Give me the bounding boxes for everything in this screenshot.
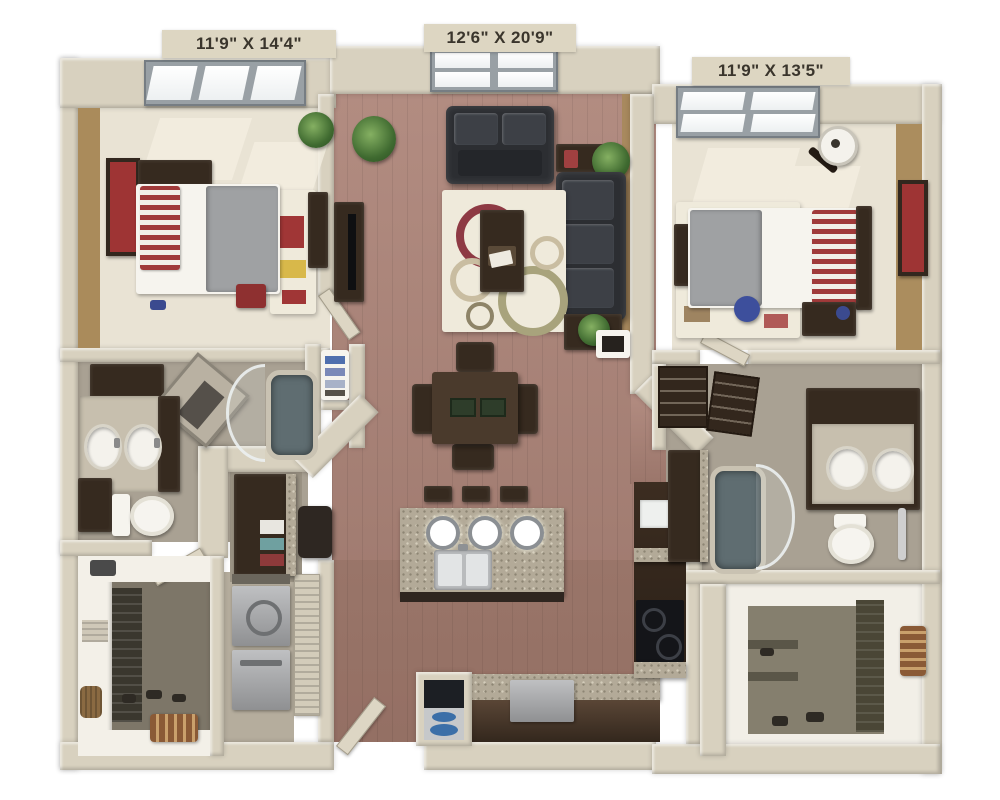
dining-chair-bottom bbox=[452, 444, 494, 470]
kitchen-counter-corner bbox=[634, 662, 686, 678]
nook-towel bbox=[260, 538, 284, 550]
wall-bedroom-right-bottom-a bbox=[652, 350, 700, 364]
desk-nook-counter bbox=[286, 474, 296, 576]
cooktop bbox=[636, 600, 684, 662]
cooktop-burner bbox=[656, 634, 682, 660]
loveseat-cushion bbox=[454, 113, 498, 145]
wall-closet-laundry-divider bbox=[210, 556, 224, 756]
linen-shelf-right-a bbox=[658, 366, 708, 428]
linen-item bbox=[325, 390, 345, 396]
loveseat bbox=[446, 106, 554, 184]
window-pane bbox=[750, 114, 815, 132]
wall-closet-right-left bbox=[700, 584, 726, 756]
bath-right-side-counter bbox=[700, 450, 708, 562]
window-bedroom-right bbox=[676, 86, 820, 138]
window-pane bbox=[198, 66, 249, 100]
wall-bath-left-lband-vertical bbox=[198, 446, 228, 558]
headboard-bedroom-left bbox=[138, 160, 212, 186]
folded-sweaters bbox=[82, 620, 108, 642]
shoe bbox=[772, 716, 788, 726]
sofa-cushion bbox=[562, 268, 614, 308]
shoe bbox=[172, 694, 186, 702]
rug-accent bbox=[276, 216, 304, 248]
bath-left-cabinet-top bbox=[90, 364, 164, 398]
island-faucet bbox=[458, 544, 468, 551]
window-pane bbox=[146, 66, 197, 100]
toilet-left-tank bbox=[112, 494, 130, 536]
round-pillow bbox=[734, 296, 760, 322]
vanity-right-sink bbox=[872, 448, 914, 492]
sink-basin bbox=[438, 554, 462, 586]
nightstand-globe bbox=[836, 306, 850, 320]
closet-right-hanging-clothes bbox=[856, 600, 884, 732]
wall-bath-left-bottom bbox=[60, 540, 152, 556]
picture-frame-inner bbox=[602, 336, 624, 352]
wall-art-bedroom-left bbox=[106, 158, 140, 256]
placemat bbox=[480, 398, 506, 417]
rug-accent bbox=[280, 260, 306, 278]
window-light-patch bbox=[692, 148, 800, 204]
floor-plan: 11'9" X 14'4" 12'6" X 20'9" 11'9" X 13'5… bbox=[0, 0, 1000, 800]
bedroom-left-floor-item bbox=[150, 300, 166, 310]
bar-stool bbox=[500, 486, 528, 502]
dimension-label-living-room: 12'6" X 20'9" bbox=[424, 24, 576, 52]
rug-accent bbox=[282, 290, 306, 304]
dishwasher bbox=[510, 680, 574, 722]
wall-art-bedroom-right bbox=[898, 180, 928, 276]
window-pane bbox=[498, 53, 553, 68]
pendant-light bbox=[510, 516, 544, 550]
dimension-label-bedroom-right: 11'9" X 13'5" bbox=[692, 57, 850, 85]
wall-bedroom-right-bottom-b bbox=[748, 350, 940, 364]
pantry-upper-shelf bbox=[424, 680, 464, 708]
shoe bbox=[760, 648, 774, 656]
linen-towel bbox=[325, 380, 345, 388]
bed-right-blanket bbox=[690, 210, 762, 306]
tv-screen bbox=[348, 214, 356, 290]
wall-bath-right-bottom bbox=[652, 570, 940, 584]
toilet-left-bowl bbox=[130, 496, 174, 536]
vanity-right-sink bbox=[826, 446, 868, 490]
plant-living-left bbox=[352, 116, 396, 162]
plant-bedroom-left bbox=[298, 112, 334, 148]
window-living-room bbox=[430, 48, 558, 92]
accent-wall-bedroom-left bbox=[78, 108, 100, 348]
bar-stool bbox=[462, 486, 490, 502]
window-pane bbox=[750, 92, 815, 110]
bar-stool bbox=[424, 486, 452, 502]
rug-accent bbox=[764, 314, 788, 328]
linen-towel bbox=[325, 356, 345, 364]
closet-right-shelf-bar bbox=[748, 640, 798, 649]
outer-wall-left bbox=[60, 58, 78, 770]
rug-circle bbox=[530, 236, 564, 270]
laundry-shelf bbox=[232, 574, 290, 584]
bed-right-pillows bbox=[812, 210, 858, 304]
washer-door bbox=[246, 600, 282, 636]
closet-right-bench bbox=[900, 626, 926, 676]
kitchen-island-base bbox=[400, 592, 564, 602]
closet-left-shelf-item bbox=[90, 560, 116, 576]
desk-chair bbox=[298, 506, 332, 558]
faucet bbox=[154, 438, 160, 448]
wall-living-right bbox=[630, 94, 654, 394]
sofa-cushion bbox=[562, 180, 614, 220]
window-pane bbox=[680, 114, 745, 132]
dimension-label-bedroom-left: 11'9" X 14'4" bbox=[162, 30, 336, 58]
shoe bbox=[146, 690, 162, 699]
blue-dishes bbox=[432, 712, 456, 722]
bed-left-pillows bbox=[140, 186, 180, 270]
bed-left-blanket bbox=[206, 186, 278, 292]
dining-chair-top bbox=[456, 342, 494, 372]
closet-left-shelf-column bbox=[78, 556, 112, 756]
toilet-right-bowl bbox=[828, 524, 874, 564]
end-table-red-item bbox=[564, 150, 578, 168]
headboard-bedroom-right bbox=[856, 206, 872, 310]
linen-towel bbox=[325, 368, 345, 376]
cooktop-burner bbox=[642, 608, 666, 632]
bathtub-left bbox=[266, 370, 318, 460]
wicker-basket bbox=[80, 686, 102, 718]
loveseat-seat bbox=[458, 150, 542, 176]
nook-towel bbox=[260, 554, 284, 566]
window-pane bbox=[680, 92, 745, 110]
window-pane bbox=[250, 66, 301, 100]
bed-left-ottoman bbox=[236, 284, 266, 308]
nook-towel bbox=[260, 520, 284, 534]
sink-basin bbox=[466, 554, 488, 586]
blue-dishes bbox=[430, 724, 458, 736]
dryer-panel bbox=[240, 660, 282, 666]
closet-right-shelf-bar bbox=[748, 672, 798, 681]
outer-wall-bottom-right bbox=[652, 744, 940, 774]
pendant-light bbox=[468, 516, 502, 550]
dresser-bedroom-left bbox=[308, 192, 328, 268]
washer bbox=[232, 586, 290, 646]
wall-laundry-entry bbox=[318, 560, 334, 742]
window-pane bbox=[498, 72, 553, 87]
outer-wall-bottom-center bbox=[424, 742, 656, 770]
shoe bbox=[122, 694, 136, 703]
bath-left-cabinet-bottom bbox=[78, 478, 112, 532]
window-bedroom-left bbox=[144, 60, 306, 106]
floor-lamp-bulb bbox=[831, 139, 840, 148]
rug-circle bbox=[466, 302, 494, 330]
window-pane bbox=[435, 72, 490, 87]
linen-shelf-right-b bbox=[706, 371, 760, 437]
window-pane bbox=[435, 53, 490, 68]
door-laundry-louvered bbox=[294, 574, 320, 716]
closet-left-bench bbox=[150, 714, 198, 742]
faucet bbox=[114, 438, 120, 448]
shoe bbox=[806, 712, 824, 722]
pendant-light bbox=[426, 516, 460, 550]
towel-rack bbox=[898, 508, 906, 560]
sofa-cushion bbox=[562, 224, 614, 264]
island-double-sink bbox=[434, 550, 492, 590]
loveseat-cushion bbox=[502, 113, 546, 145]
rug-accent bbox=[684, 306, 710, 322]
placemat bbox=[450, 398, 476, 417]
dryer bbox=[232, 650, 290, 710]
